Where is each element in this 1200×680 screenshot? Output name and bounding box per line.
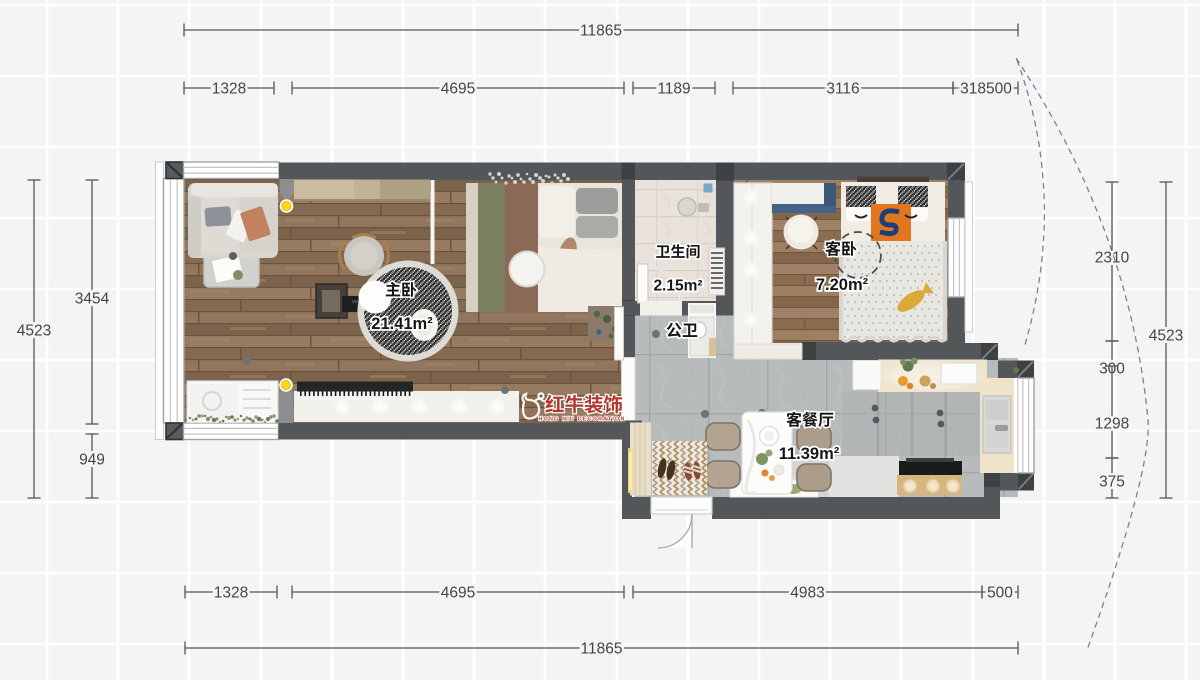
svg-text:21.41m²: 21.41m² [371, 315, 433, 333]
svg-text:3454: 3454 [75, 291, 110, 308]
svg-text:HONG NIU DECORATION: HONG NIU DECORATION [538, 417, 625, 423]
svg-text:4523: 4523 [1149, 328, 1183, 345]
svg-text:4523: 4523 [17, 323, 51, 340]
svg-text:7.20m²: 7.20m² [816, 276, 869, 294]
svg-text:4983: 4983 [790, 585, 824, 602]
svg-text:4695: 4695 [441, 81, 475, 98]
svg-text:11.39m²: 11.39m² [779, 445, 840, 463]
svg-text:4695: 4695 [441, 585, 475, 602]
svg-text:1189: 1189 [657, 81, 690, 98]
svg-text:2.15m²: 2.15m² [653, 278, 702, 295]
svg-text:500: 500 [987, 585, 1013, 602]
svg-text:1328: 1328 [212, 81, 246, 98]
svg-text:11865: 11865 [580, 23, 622, 40]
svg-text:375: 375 [1099, 474, 1125, 491]
svg-text:1328: 1328 [214, 585, 248, 602]
svg-text:2310: 2310 [1095, 250, 1130, 267]
svg-text:318500: 318500 [960, 81, 1012, 98]
svg-text:11865: 11865 [581, 641, 623, 658]
svg-text:3116: 3116 [826, 81, 859, 98]
svg-text:949: 949 [79, 452, 105, 469]
svg-text:1298: 1298 [1095, 416, 1129, 433]
